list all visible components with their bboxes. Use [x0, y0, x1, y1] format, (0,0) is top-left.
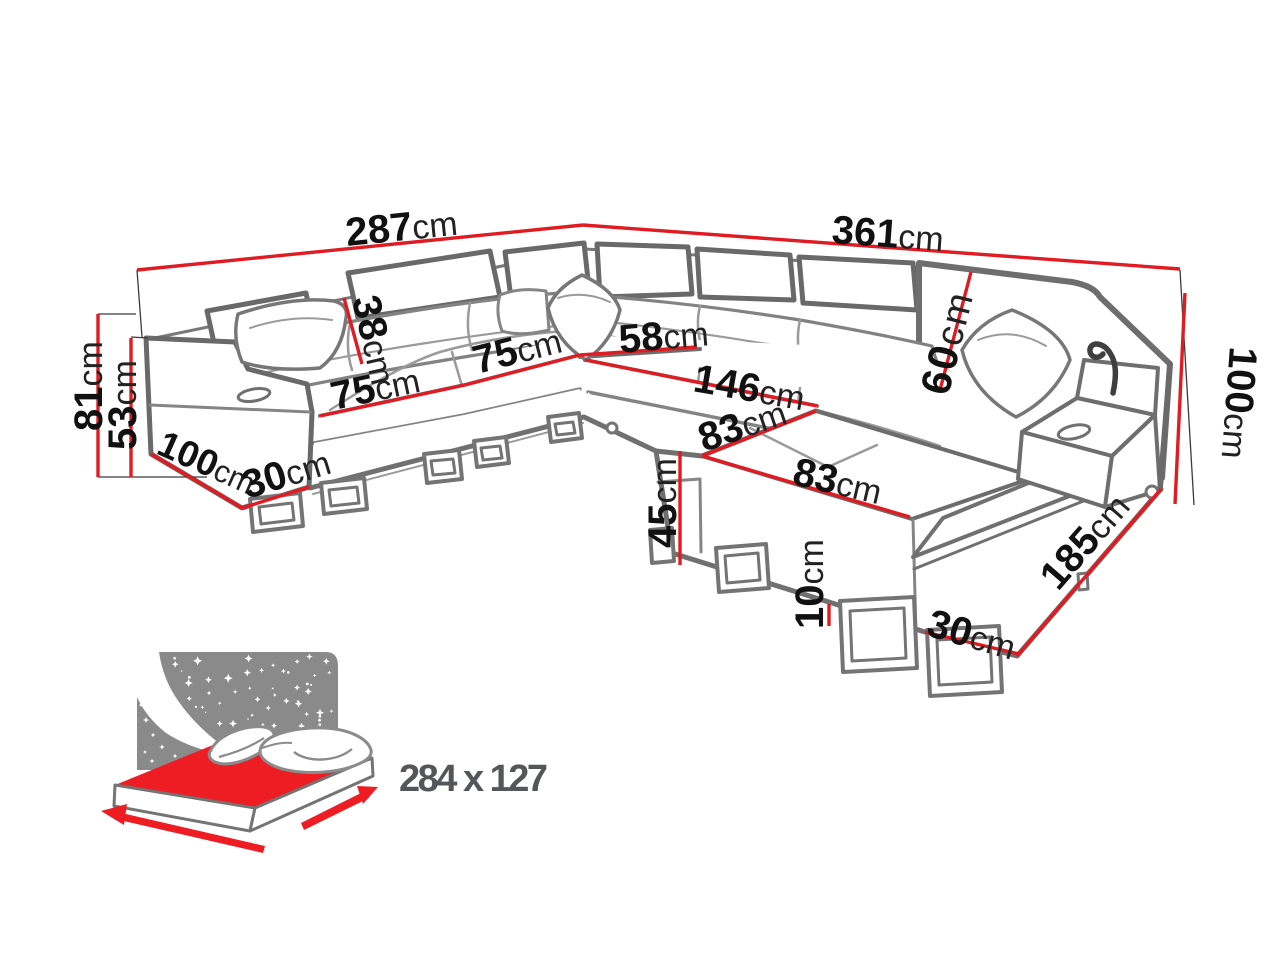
svg-text:284 x 127: 284 x 127	[399, 758, 547, 800]
svg-text:10cm: 10cm	[788, 539, 832, 629]
svg-text:53cm: 53cm	[101, 360, 145, 450]
svg-text:45cm: 45cm	[641, 458, 685, 548]
